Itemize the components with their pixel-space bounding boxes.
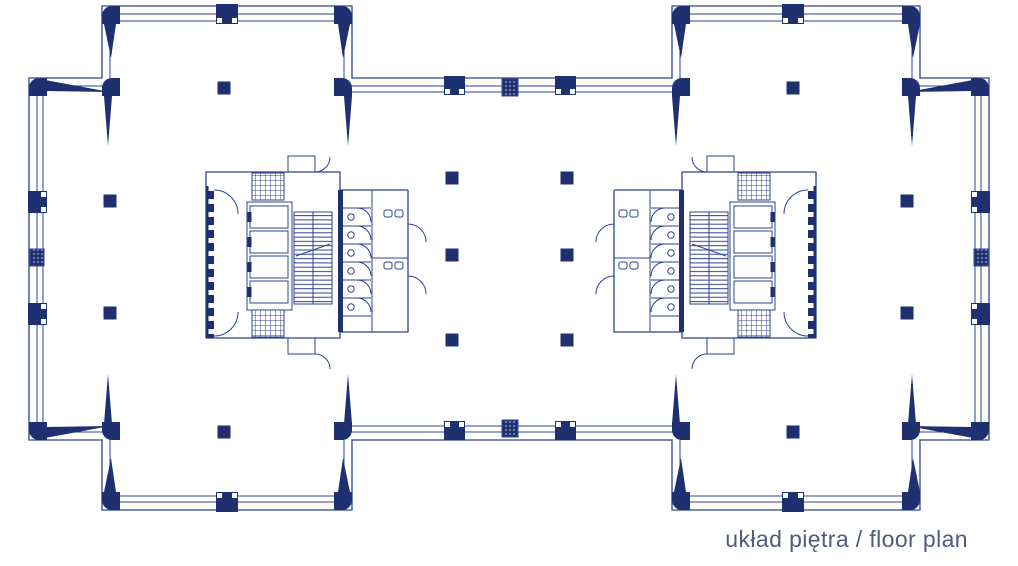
structural-column: [446, 334, 459, 347]
corner-column: [902, 492, 920, 510]
structural-column: [104, 195, 117, 208]
structural-column: [561, 172, 574, 185]
toilet-block-outline: [340, 190, 408, 332]
wall-brace: [104, 24, 116, 58]
floor-plan-drawing: [0, 0, 1018, 566]
corner-column: [672, 78, 690, 96]
wall-column-notch: [445, 422, 450, 427]
core-left: [206, 156, 426, 369]
toilet-divider-wall: [338, 190, 343, 332]
wall-brace: [908, 96, 916, 146]
wall-brace: [104, 458, 116, 492]
caption: układ piętra / floor plan: [725, 526, 968, 553]
elevator-door: [248, 262, 252, 272]
wall-brace: [344, 96, 352, 146]
wall-column-notch: [570, 422, 575, 427]
wall-mullion: [974, 249, 988, 266]
corner-column: [29, 422, 47, 440]
structural-column: [787, 82, 800, 95]
elevator-door: [248, 212, 252, 222]
structural-column: [104, 307, 117, 320]
structural-column: [561, 249, 574, 262]
wall-column-notch: [217, 493, 222, 498]
wall-column-notch: [972, 319, 977, 324]
corner-column: [29, 78, 47, 96]
wall-brace: [344, 374, 352, 424]
corner-column: [102, 78, 120, 96]
corner-column: [672, 492, 690, 510]
wall-column-notch: [445, 89, 450, 94]
core-right: [596, 156, 816, 369]
freestanding-columns: [104, 82, 914, 439]
wall-column-notch: [41, 207, 46, 212]
wall-brace: [104, 374, 112, 424]
floor-plan-page: układ piętra / floor plan: [0, 0, 1018, 566]
wall-column-notch: [556, 89, 561, 94]
wall-brace: [338, 24, 350, 58]
elevator-door: [248, 237, 252, 247]
corner-column: [971, 422, 989, 440]
corner-column: [902, 6, 920, 24]
structural-column: [901, 307, 914, 320]
wall-mullion: [30, 249, 44, 266]
shaft-hatch-bottom: [252, 310, 284, 337]
wall-column-notch: [783, 493, 788, 498]
corner-column: [334, 422, 352, 440]
corner-column: [334, 78, 352, 96]
wall-brace: [908, 374, 916, 424]
wall-column-notch: [783, 18, 788, 23]
wall-brace: [674, 24, 686, 58]
sink-fixtures: [384, 210, 403, 269]
corner-column: [102, 6, 120, 24]
structural-column: [218, 426, 231, 439]
wall-brace: [672, 374, 680, 424]
elevator-cab: [250, 256, 288, 278]
structural-column: [446, 249, 459, 262]
wall-column-notch: [459, 422, 464, 427]
elevator-cab: [250, 206, 288, 228]
toilet-entry-doors: [408, 224, 426, 294]
structural-column: [901, 195, 914, 208]
corner-column: [902, 78, 920, 96]
wall-column-notch: [972, 207, 977, 212]
wall-column-notch: [570, 89, 575, 94]
wall-column-notch: [798, 493, 803, 498]
wall-column-notch: [972, 304, 977, 309]
structural-column: [787, 426, 800, 439]
wall-mullion: [502, 79, 518, 96]
elevator-door: [248, 287, 252, 297]
wall-column-notch: [798, 18, 803, 23]
core-left-shear-wall: [206, 186, 214, 338]
wall-column-notch: [41, 319, 46, 324]
corner-column: [902, 422, 920, 440]
wall-column-notch: [41, 304, 46, 309]
toilet-stall-walls: [343, 190, 408, 332]
wall-column-notch: [232, 18, 237, 23]
structural-column: [446, 172, 459, 185]
vestibule-top: [288, 156, 315, 172]
wall-column-notch: [459, 89, 464, 94]
structural-column: [218, 82, 231, 95]
corner-column: [334, 6, 352, 24]
wall-column-notch: [41, 192, 46, 197]
corner-column: [102, 492, 120, 510]
shaft-hatch-top: [252, 173, 284, 200]
toilet-stall-doors: [357, 208, 371, 312]
vestibule-bottom: [288, 338, 315, 354]
wall-brace: [338, 458, 350, 492]
wall-brace: [908, 24, 920, 58]
corner-column: [672, 422, 690, 440]
corner-column: [672, 6, 690, 24]
elevator-cab: [250, 231, 288, 253]
corner-column: [971, 78, 989, 96]
structural-column: [561, 334, 574, 347]
elevator-cab: [250, 281, 288, 303]
wall-mullions: [30, 79, 988, 437]
wall-column-notch: [232, 493, 237, 498]
wall-column-notch: [972, 192, 977, 197]
wall-brace: [672, 96, 680, 146]
wall-mullion: [502, 420, 518, 437]
corner-column: [102, 422, 120, 440]
corner-column: [334, 492, 352, 510]
wall-brace: [908, 458, 920, 492]
wall-brace: [104, 96, 112, 146]
wall-brace: [674, 458, 686, 492]
wall-column-notch: [556, 422, 561, 427]
wall-column-notch: [217, 18, 222, 23]
